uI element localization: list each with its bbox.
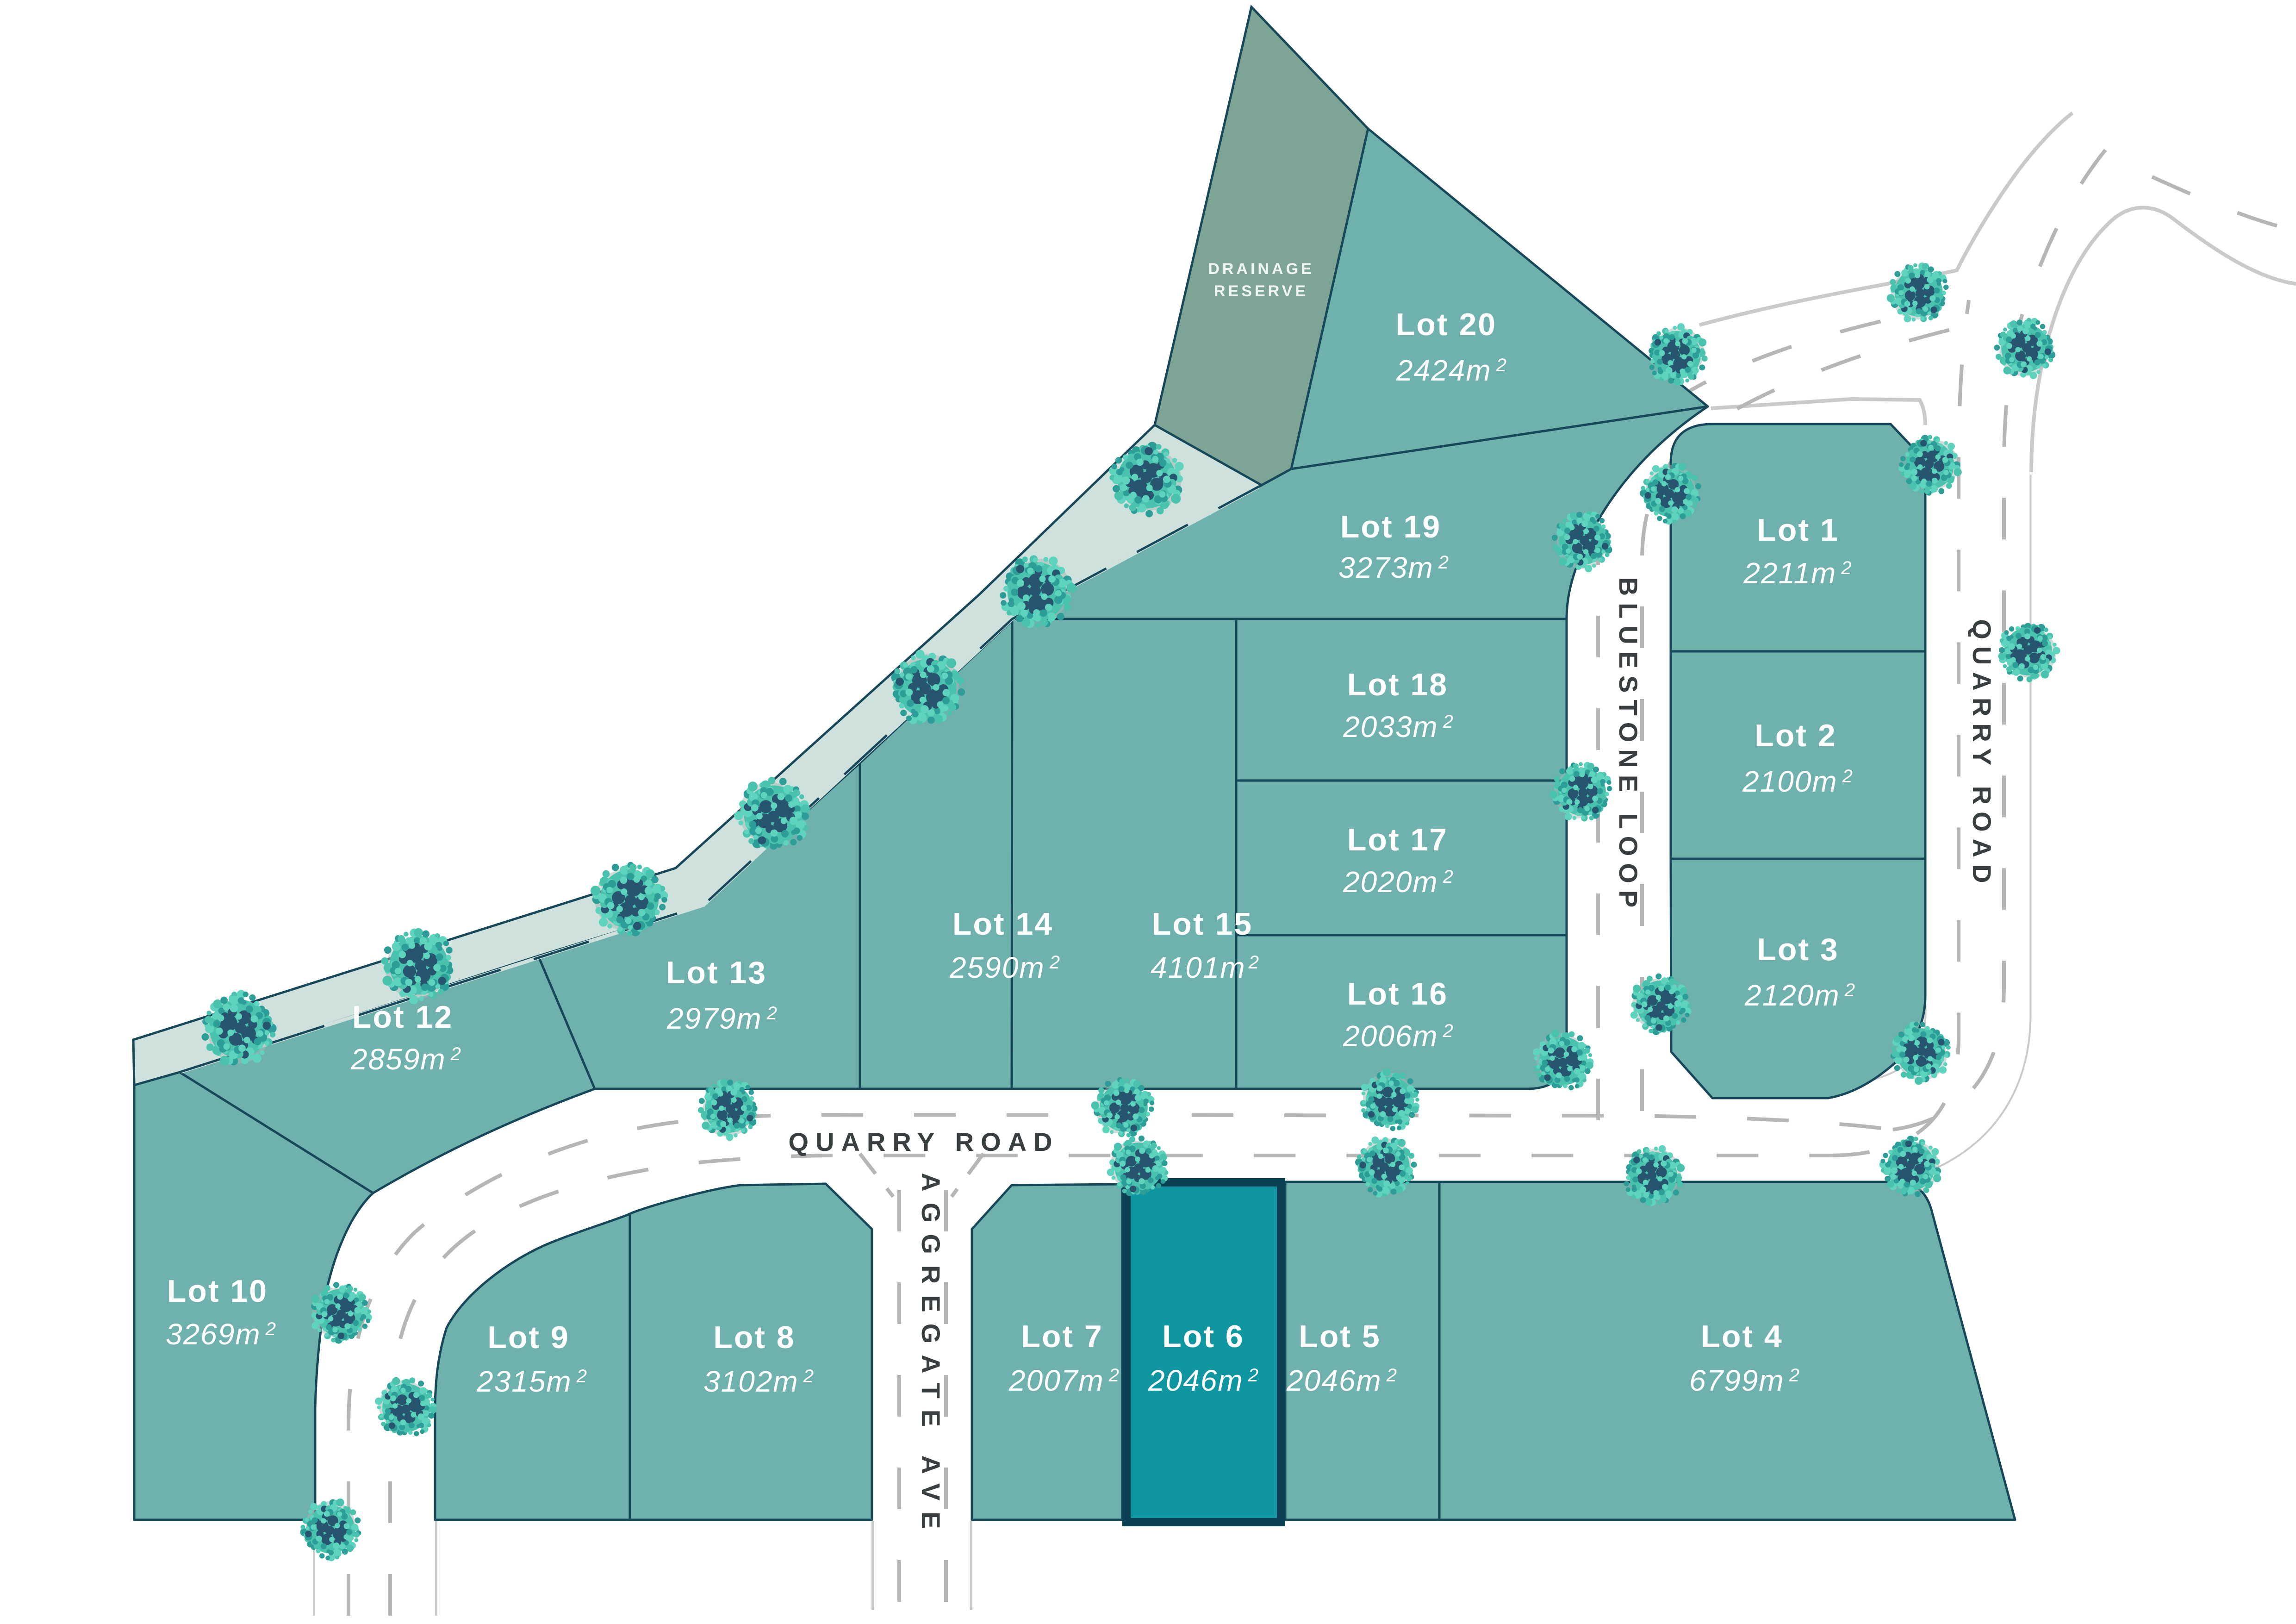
svg-text:Lot 1: Lot 1 [1757, 512, 1839, 548]
svg-text:2006m2: 2006m2 [1343, 1019, 1454, 1053]
svg-text:2120m2: 2120m2 [1744, 979, 1856, 1012]
svg-text:Lot 4: Lot 4 [1701, 1319, 1783, 1354]
svg-text:Lot 18: Lot 18 [1347, 667, 1448, 702]
svg-text:2100m2: 2100m2 [1742, 765, 1854, 798]
svg-text:2315m2: 2315m2 [476, 1365, 588, 1398]
svg-text:Lot 5: Lot 5 [1299, 1319, 1381, 1354]
svg-text:Lot 16: Lot 16 [1347, 976, 1448, 1012]
svg-text:DRAINAGE: DRAINAGE [1208, 260, 1314, 278]
svg-text:Lot 7: Lot 7 [1021, 1319, 1103, 1354]
svg-text:2211m2: 2211m2 [1743, 556, 1852, 590]
svg-text:Lot 20: Lot 20 [1396, 307, 1497, 342]
svg-text:2590m2: 2590m2 [949, 951, 1061, 984]
svg-text:2033m2: 2033m2 [1343, 710, 1454, 743]
svg-text:2979m2: 2979m2 [666, 1002, 778, 1035]
svg-text:3102m2: 3102m2 [703, 1365, 815, 1398]
svg-text:2424m2: 2424m2 [1396, 354, 1507, 387]
svg-text:Lot 8: Lot 8 [713, 1320, 795, 1355]
svg-text:2007m2: 2007m2 [1008, 1364, 1120, 1397]
svg-text:Lot 3: Lot 3 [1757, 932, 1839, 967]
svg-text:Lot 17: Lot 17 [1347, 822, 1448, 857]
svg-text:QUARRY ROAD: QUARRY ROAD [1967, 619, 1997, 890]
svg-text:BLUESTONE LOOP: BLUESTONE LOOP [1614, 577, 1643, 915]
svg-text:3269m2: 3269m2 [166, 1318, 277, 1351]
svg-text:2859m2: 2859m2 [350, 1043, 462, 1076]
svg-text:2020m2: 2020m2 [1343, 865, 1454, 899]
svg-text:4101m2: 4101m2 [1151, 951, 1260, 984]
svg-text:3273m2: 3273m2 [1338, 551, 1450, 584]
svg-text:Lot 15: Lot 15 [1152, 906, 1253, 942]
svg-text:Lot 10: Lot 10 [167, 1274, 268, 1309]
svg-text:AGGREGATE AVE: AGGREGATE AVE [916, 1173, 946, 1540]
svg-text:QUARRY ROAD: QUARRY ROAD [788, 1127, 1059, 1156]
svg-text:RESERVE: RESERVE [1214, 282, 1308, 300]
svg-text:Lot 13: Lot 13 [666, 955, 767, 990]
svg-text:Lot 19: Lot 19 [1340, 509, 1441, 544]
svg-text:2046m2: 2046m2 [1148, 1364, 1259, 1397]
svg-text:Lot 2: Lot 2 [1755, 718, 1836, 753]
svg-text:6799m2: 6799m2 [1689, 1364, 1800, 1397]
svg-text:2046m2: 2046m2 [1286, 1364, 1398, 1397]
svg-text:Lot 6: Lot 6 [1162, 1319, 1244, 1354]
svg-text:Lot 9: Lot 9 [487, 1320, 569, 1355]
svg-text:Lot 12: Lot 12 [352, 999, 453, 1035]
svg-text:Lot 14: Lot 14 [952, 906, 1053, 942]
